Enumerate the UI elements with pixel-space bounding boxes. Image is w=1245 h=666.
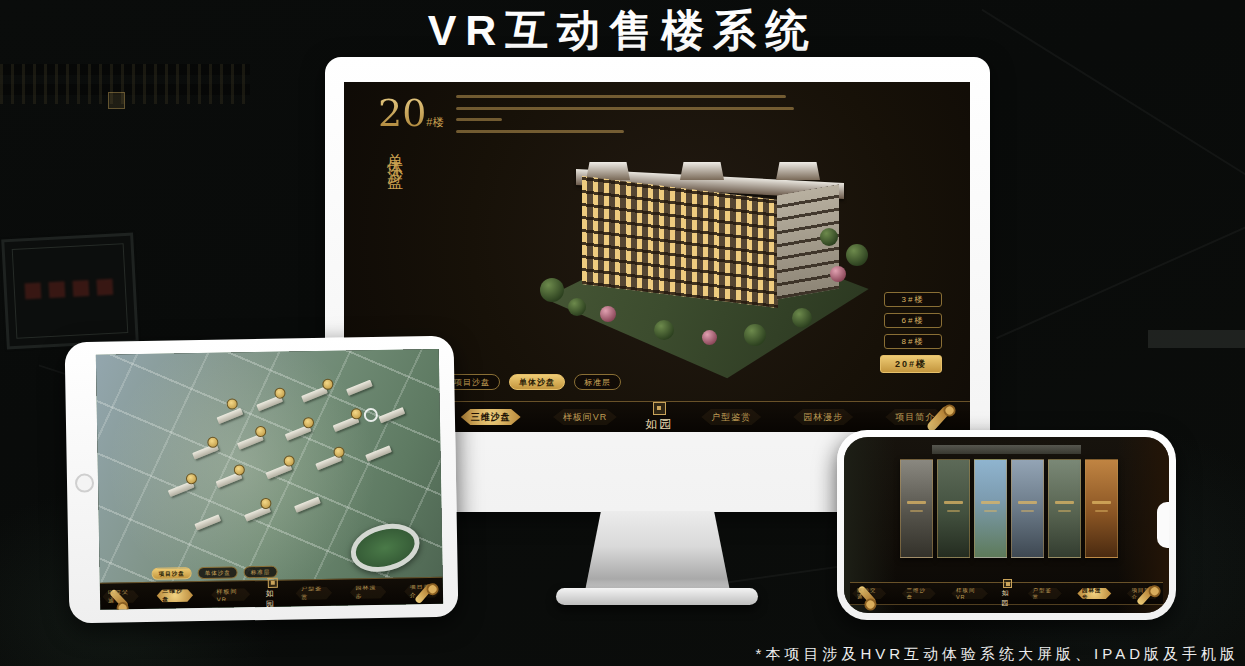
- scene-card[interactable]: [974, 459, 1007, 558]
- tablet-view-tab-group: 项目沙盘 单体沙盘 标准层: [152, 566, 278, 580]
- background-gold-chip: [108, 92, 125, 109]
- tree: [792, 308, 812, 328]
- stage: VR互动售楼系统 20#楼 单体沙盘: [0, 0, 1245, 666]
- nav-item-model-room-vr[interactable]: 样板间VR: [549, 409, 622, 425]
- tablet-nav-item-garden-walk[interactable]: 园林漫步: [347, 585, 388, 599]
- scene-card-sublabel: [910, 510, 922, 512]
- scene-card-label: [1092, 501, 1112, 504]
- tablet-brand-logo-text: 如园: [266, 588, 281, 610]
- scene-card-label: [981, 501, 1001, 504]
- scene-card-label: [907, 501, 927, 504]
- phone-brand-logo[interactable]: 如园: [1001, 579, 1014, 608]
- page-title: VR互动售楼系统: [0, 2, 1245, 60]
- tree: [654, 320, 674, 340]
- building-number: 20: [378, 91, 426, 135]
- pink-shrub: [702, 330, 717, 345]
- tablet-nav-item-model-room-vr[interactable]: 样板间VR: [208, 588, 253, 602]
- monitor-stand-neck: [585, 511, 730, 591]
- background-plaque: [1, 233, 139, 350]
- background-building-strip: [1148, 330, 1245, 348]
- tablet-brand-logo[interactable]: 如园: [266, 578, 281, 610]
- floor-button-3[interactable]: 3#楼: [884, 292, 942, 307]
- phone-screen: 区位交通 三维沙盘 样板间VR 如园 户型鉴赏 园林漫步 项目简介: [844, 437, 1169, 613]
- seal-icon: [1003, 579, 1012, 588]
- floor-button-group: 3#楼 6#楼 8#楼 20#楼: [880, 292, 942, 373]
- nav-item-3d-sandtable[interactable]: 三维沙盘: [457, 409, 525, 425]
- phone-brand-logo-text: 如园: [1001, 588, 1014, 608]
- nav-item-garden-walk[interactable]: 园林漫步: [789, 409, 857, 425]
- tablet-nav-item-3d-sandtable[interactable]: 三维沙盘: [154, 589, 195, 603]
- tablet-tab-standard-floor[interactable]: 标准层: [244, 566, 278, 579]
- pink-shrub: [600, 306, 616, 322]
- plaque-glyph: [25, 283, 42, 300]
- building-model-render[interactable]: [534, 148, 879, 383]
- brand-logo-text: 如园: [645, 416, 673, 433]
- tree: [820, 228, 838, 246]
- headline-subtitle-vertical: 单体沙盘: [384, 140, 405, 168]
- description-line: [456, 130, 624, 133]
- scene-card-label: [1018, 501, 1038, 504]
- scene-card-sublabel: [947, 510, 959, 512]
- camera-notch: [1157, 502, 1169, 548]
- tree: [540, 278, 564, 302]
- view-tab-group: 项目沙盘 单体沙盘 标准层: [444, 374, 621, 390]
- scene-card[interactable]: [900, 459, 933, 558]
- description-line: [456, 107, 794, 110]
- scene-card[interactable]: [1085, 459, 1118, 558]
- background-map-texture: [0, 64, 250, 104]
- plaque-glyph: [72, 280, 89, 297]
- description-line: [456, 95, 786, 98]
- scene-card[interactable]: [937, 459, 970, 558]
- floor-button-20[interactable]: 20#楼: [880, 355, 942, 373]
- phone-device: 区位交通 三维沙盘 样板间VR 如园 户型鉴赏 园林漫步 项目简介: [837, 430, 1176, 620]
- tablet-screen: 项目沙盘 单体沙盘 标准层 区位交通 三维沙盘 样板间VR 如园 户型鉴赏 园林…: [96, 349, 443, 610]
- tree: [846, 244, 868, 266]
- phone-nav-item-3d-sandtable[interactable]: 三维沙盘: [899, 588, 937, 599]
- phone-navbar: 区位交通 三维沙盘 样板间VR 如园 户型鉴赏 园林漫步 项目简介: [850, 582, 1163, 605]
- tree: [744, 324, 766, 346]
- scene-card-sublabel: [1058, 510, 1070, 512]
- tab-single-sandtable[interactable]: 单体沙盘: [509, 374, 565, 390]
- tablet-device: 项目沙盘 单体沙盘 标准层 区位交通 三维沙盘 样板间VR 如园 户型鉴赏 园林…: [65, 336, 459, 624]
- phone-nav-item-model-room-vr[interactable]: 样板间VR: [949, 588, 990, 599]
- floor-button-8[interactable]: 8#楼: [884, 334, 942, 349]
- description-line: [456, 118, 502, 121]
- building-headline: 20#楼 单体沙盘: [378, 94, 443, 168]
- phone-nav-item-garden-walk[interactable]: 园林漫步: [1075, 588, 1113, 599]
- seal-icon: [653, 402, 666, 415]
- scene-card[interactable]: [1048, 459, 1081, 558]
- scene-card-sublabel: [1095, 510, 1107, 512]
- scene-card-label: [1055, 501, 1075, 504]
- tablet-navbar: 区位交通 三维沙盘 样板间VR 如园 户型鉴赏 园林漫步 项目简介: [100, 577, 443, 610]
- scene-card-sublabel: [1021, 510, 1033, 512]
- plaque-glyph: [96, 279, 113, 296]
- roof-cap: [680, 162, 724, 180]
- tablet-tab-single-sandtable[interactable]: 单体沙盘: [198, 566, 238, 579]
- background-road-line: [996, 183, 1245, 339]
- scene-card-label: [944, 501, 964, 504]
- pink-shrub: [830, 266, 846, 282]
- tablet-nav-item-floorplans[interactable]: 户型鉴赏: [293, 586, 334, 600]
- scene-card[interactable]: [1011, 459, 1044, 558]
- floor-button-6[interactable]: 6#楼: [884, 313, 942, 328]
- scene-card-sublabel: [984, 510, 996, 512]
- seal-icon: [268, 578, 278, 588]
- tablet-tab-project-sandtable[interactable]: 项目沙盘: [152, 567, 192, 580]
- building-number-suffix: #楼: [426, 116, 443, 128]
- roof-cap: [776, 162, 820, 180]
- nav-item-floorplans[interactable]: 户型鉴赏: [697, 409, 765, 425]
- scene-beam: [932, 445, 1082, 454]
- tablet-nav-item-location[interactable]: 区位交通: [100, 590, 141, 604]
- phone-nav-item-floorplans[interactable]: 户型鉴赏: [1026, 588, 1064, 599]
- tab-standard-floor[interactable]: 标准层: [574, 374, 621, 390]
- phone-nav-item-location[interactable]: 区位交通: [850, 588, 888, 599]
- home-button[interactable]: [75, 473, 94, 492]
- brand-logo[interactable]: 如园: [645, 402, 673, 433]
- plaque-glyph: [49, 281, 66, 298]
- footnote: *本项目涉及HVR互动体验系统大屏版、IPAD版及手机版: [756, 645, 1239, 664]
- monitor-stand-base: [556, 588, 758, 605]
- tree: [568, 298, 586, 316]
